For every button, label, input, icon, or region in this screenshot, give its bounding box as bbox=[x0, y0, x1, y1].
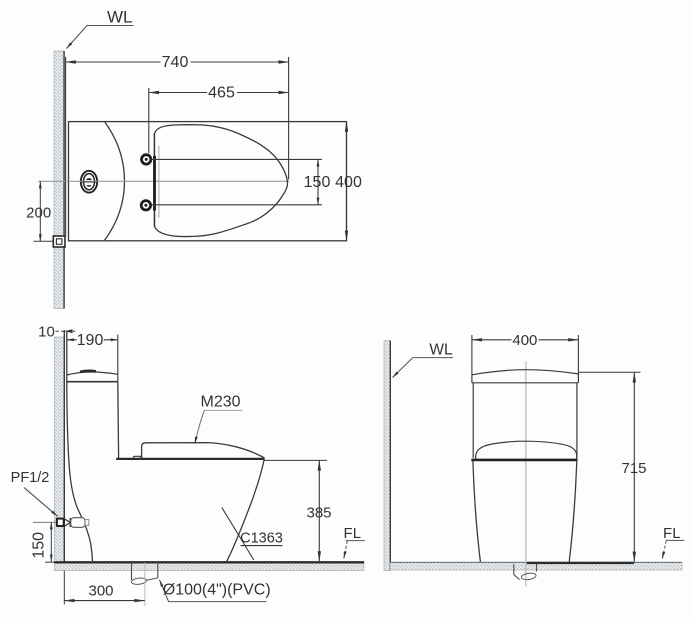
svg-text:150: 150 bbox=[30, 532, 47, 559]
svg-text:385: 385 bbox=[306, 505, 331, 522]
svg-text:Ø100(4")(PVC): Ø100(4")(PVC) bbox=[163, 582, 271, 599]
svg-text:190: 190 bbox=[77, 332, 104, 349]
svg-text:10: 10 bbox=[38, 324, 55, 341]
svg-text:WL: WL bbox=[107, 7, 133, 26]
svg-text:400: 400 bbox=[512, 332, 537, 349]
svg-text:WL: WL bbox=[429, 342, 453, 359]
svg-text:715: 715 bbox=[621, 460, 646, 477]
svg-text:FL: FL bbox=[344, 525, 362, 542]
svg-text:PF1/2: PF1/2 bbox=[11, 470, 50, 486]
svg-text:400: 400 bbox=[335, 174, 362, 191]
svg-text:FL: FL bbox=[663, 525, 681, 542]
svg-text:150: 150 bbox=[304, 174, 331, 191]
svg-text:300: 300 bbox=[88, 582, 113, 599]
svg-text:740: 740 bbox=[162, 54, 189, 71]
svg-text:200: 200 bbox=[26, 204, 51, 221]
svg-text:C1363: C1363 bbox=[240, 530, 283, 546]
svg-text:M230: M230 bbox=[200, 394, 240, 411]
svg-text:465: 465 bbox=[208, 85, 235, 102]
